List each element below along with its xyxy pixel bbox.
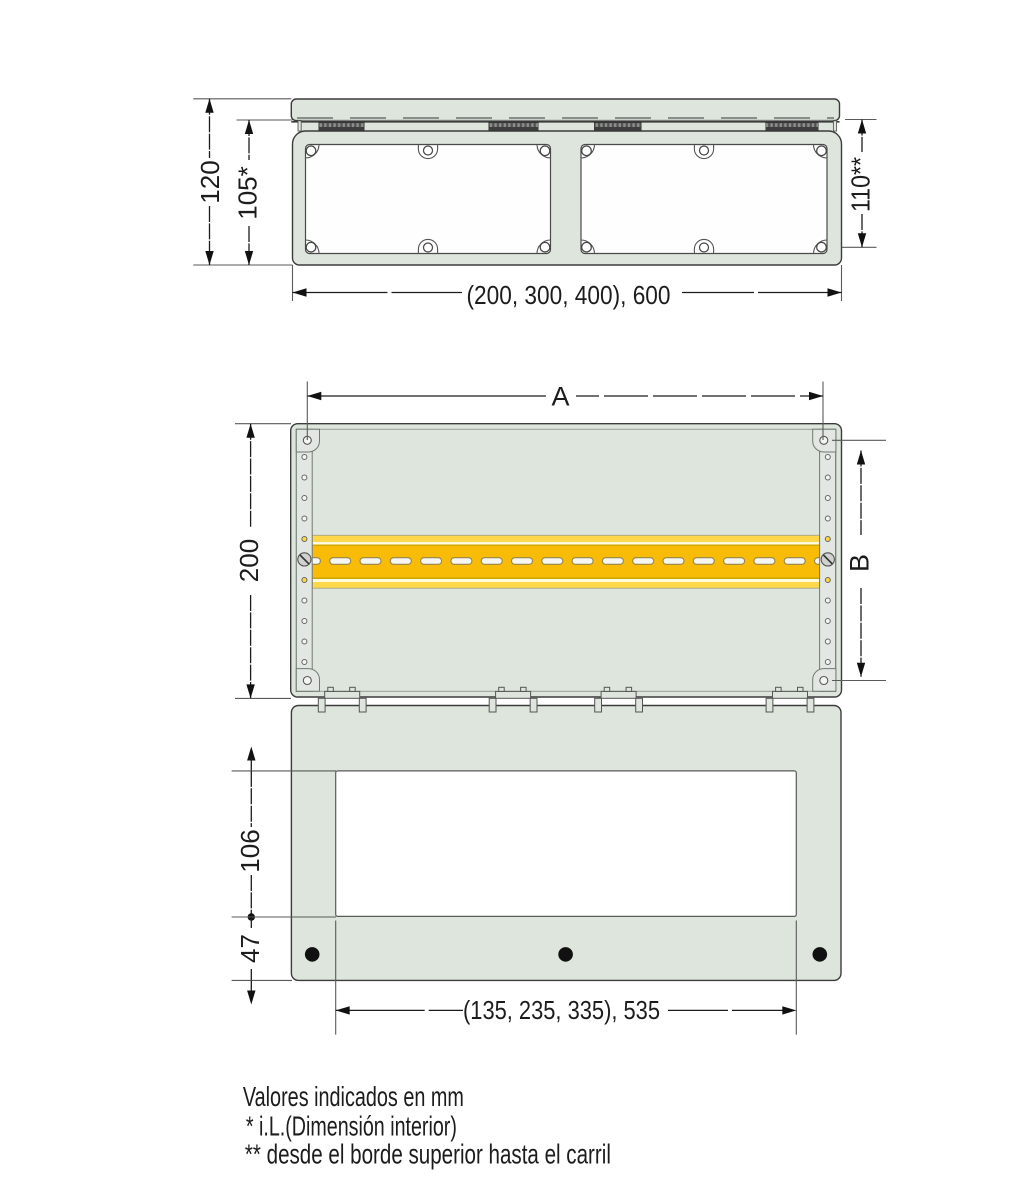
svg-text:(200, 300, 400), 600: (200, 300, 400), 600 xyxy=(467,280,671,310)
svg-text:Valores indicados en mm: Valores indicados en mm xyxy=(243,1081,464,1112)
svg-text:A: A xyxy=(551,382,569,412)
svg-text:106: 106 xyxy=(235,829,265,872)
svg-text:B: B xyxy=(845,554,875,572)
svg-text:200: 200 xyxy=(234,539,264,582)
svg-text:** desde el borde superior has: ** desde el borde superior hasta el carr… xyxy=(245,1139,611,1170)
svg-text:* i.L.(Dimensión interior): * i.L.(Dimensión interior) xyxy=(246,1111,457,1142)
svg-text:110**: 110** xyxy=(846,157,876,212)
svg-text:(135, 235, 335), 535: (135, 235, 335), 535 xyxy=(463,995,660,1025)
svg-text:105*: 105* xyxy=(233,166,263,220)
svg-text:47: 47 xyxy=(235,934,265,963)
svg-text:120: 120 xyxy=(195,160,225,203)
